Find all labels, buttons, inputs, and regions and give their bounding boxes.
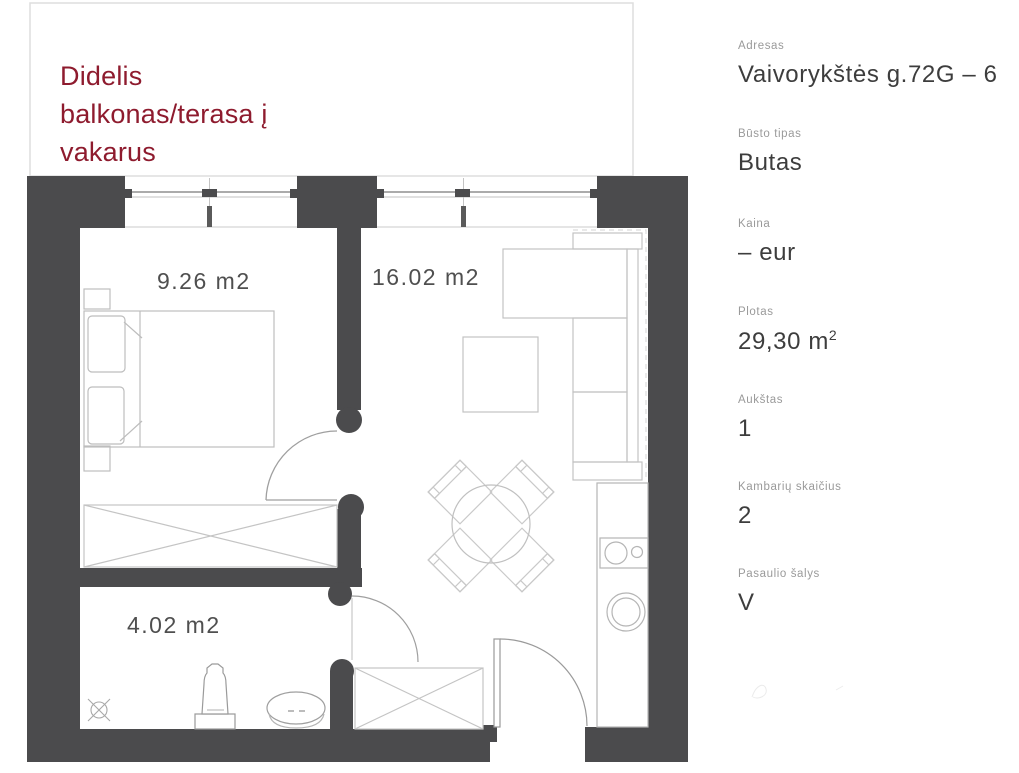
field-value: Vaivorykštės g.72G – 6 (738, 61, 1013, 89)
field-value: Butas (738, 149, 1013, 177)
dining-set (428, 460, 554, 592)
bed (84, 289, 274, 471)
coffee-table (463, 337, 538, 412)
balcony-note-line: Didelis (60, 57, 310, 95)
field-value: 29,30 m2 (738, 327, 1013, 356)
field-label: Kambarių skaičius (738, 481, 1013, 493)
balcony-note: Didelis balkonas/terasa į vakarus (60, 57, 310, 171)
dining-chair (428, 528, 492, 592)
sink-bowl (605, 542, 627, 564)
field-value: 2 (738, 502, 1013, 530)
entrance-door (494, 639, 587, 727)
field-busto-tipas: Būsto tipas Butas (738, 128, 1013, 177)
field-kambariu-skaicius: Kambarių skaičius 2 (738, 481, 1013, 530)
sofa (503, 230, 646, 481)
field-label: Plotas (738, 306, 1013, 318)
room-label-bathroom: 4.02 m2 (127, 612, 221, 638)
bathroom-door (352, 596, 418, 662)
sink-unit (600, 538, 648, 568)
field-label: Aukštas (738, 394, 1013, 406)
field-plotas: Plotas 29,30 m2 (738, 306, 1013, 356)
dining-chair (490, 460, 554, 524)
dining-chair (428, 460, 492, 524)
field-label: Adresas (738, 40, 1013, 52)
watermark-signature (740, 672, 860, 712)
pillow (88, 316, 125, 372)
dining-chair (490, 528, 554, 592)
floor-drain (88, 699, 110, 721)
sink-bowl-small (632, 547, 643, 558)
field-value: – eur (738, 239, 1013, 267)
walls (27, 176, 688, 762)
balcony-note-line: balkonas/terasa į (60, 95, 310, 133)
area-sup: 2 (829, 327, 837, 343)
nightstand-top (84, 289, 110, 309)
balcony-note-line: vakarus (60, 133, 310, 171)
room-label-living: 16.02 m2 (372, 264, 480, 290)
bedroom-door (266, 431, 337, 500)
field-value: V (738, 589, 1013, 617)
kitchen-counter (597, 483, 648, 727)
floorplan: 9.26 m2 16.02 m2 4.02 m2 Didelis balkona… (0, 0, 700, 768)
field-value: 1 (738, 415, 1013, 443)
washbasin (267, 692, 325, 728)
dining-table (452, 485, 530, 563)
field-aukstas: Aukštas 1 (738, 394, 1013, 443)
wardrobe (84, 505, 337, 567)
field-label: Būsto tipas (738, 128, 1013, 140)
field-kaina: Kaina – eur (738, 218, 1013, 267)
hall-closet (355, 668, 483, 729)
area-value: 29,30 m (738, 328, 829, 355)
field-adresas: Adresas Vaivorykštės g.72G – 6 (738, 40, 1013, 89)
room-label-bedroom: 9.26 m2 (157, 268, 251, 294)
field-pasaulio-salys: Pasaulio šalys V (738, 568, 1013, 617)
toilet (195, 664, 235, 729)
property-sidebar: Adresas Vaivorykštės g.72G – 6 Būsto tip… (738, 0, 1013, 768)
pillow (88, 387, 124, 444)
nightstand-bottom (84, 446, 110, 471)
washing-machine (607, 593, 645, 631)
field-label: Pasaulio šalys (738, 568, 1013, 580)
field-label: Kaina (738, 218, 1013, 230)
